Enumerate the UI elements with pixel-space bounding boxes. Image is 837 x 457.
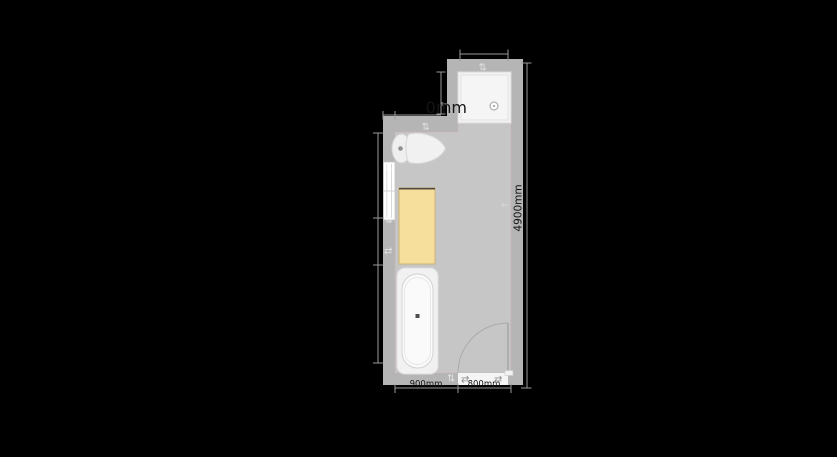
right-dimension-label: 4900mm [513, 184, 525, 231]
move-handle-arrow-icon[interactable]: ⇅ [385, 215, 393, 226]
shower-drain-dot [493, 105, 495, 107]
planner-canvas: 0mm 4900mm 900mm 800mm ⇅ ⇅ ⇅ ⇅ ⇄ ⇅ ⇄ ⇄ ←… [0, 0, 837, 457]
move-handle-arrow-icon[interactable]: ⇄ [461, 375, 469, 386]
move-handle-arrow-icon[interactable]: ⇄ [384, 246, 392, 257]
move-handle-arrow-icon[interactable]: ⇅ [422, 122, 430, 133]
move-handle-arrow-icon[interactable]: ⇅ [479, 63, 487, 74]
move-handle-arrow-icon[interactable]: ← [501, 200, 509, 211]
bathtub-drain-icon [416, 314, 420, 318]
move-handle-arrow-icon[interactable]: ⇅ [447, 374, 455, 385]
floor-plan: 0mm 4900mm 900mm 800mm ⇅ ⇅ ⇅ ⇅ ⇄ ⇅ ⇄ ⇄ ←… [0, 0, 837, 457]
move-handle-arrow-icon[interactable]: ⇅ [385, 163, 393, 174]
cabinet[interactable] [399, 188, 435, 264]
move-handle-arrow-icon[interactable]: ⇄ [494, 375, 502, 386]
bottom-left-dimension-label: 900mm [410, 380, 443, 390]
toilet-flush-button-icon [398, 146, 403, 151]
door-hinge [505, 371, 513, 376]
bathtub[interactable] [397, 268, 438, 374]
move-handle-arrow-icon[interactable]: ← [440, 99, 448, 110]
